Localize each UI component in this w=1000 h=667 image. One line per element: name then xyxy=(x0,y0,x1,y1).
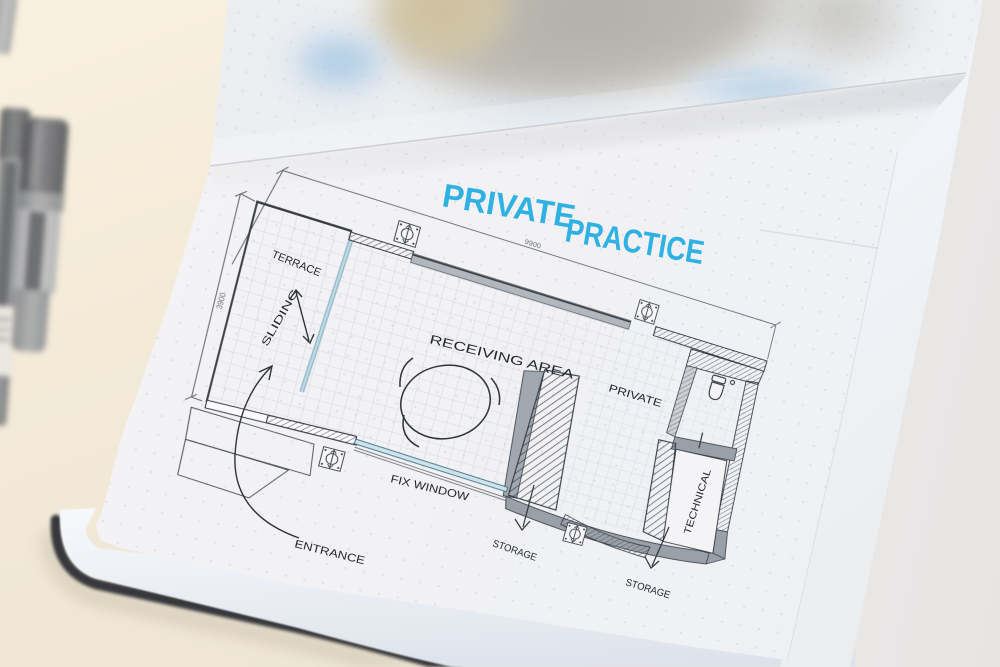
svg-text:FIX WINDOW: FIX WINDOW xyxy=(389,473,470,504)
svg-text:SLIDING: SLIDING xyxy=(259,287,301,348)
svg-text:TERRACE: TERRACE xyxy=(270,249,323,280)
svg-text:RECEIVING AREA: RECEIVING AREA xyxy=(428,332,576,382)
svg-text:STORAGE: STORAGE xyxy=(624,577,672,601)
svg-text:PRIVATE: PRIVATE xyxy=(440,176,578,235)
svg-text:PRACTICE: PRACTICE xyxy=(563,211,707,271)
svg-text:TECHNICAL: TECHNICAL xyxy=(682,467,714,536)
svg-text:ENTRANCE: ENTRANCE xyxy=(293,538,366,567)
svg-text:PRIVATE: PRIVATE xyxy=(607,382,663,410)
svg-text:STORAGE: STORAGE xyxy=(491,538,538,563)
